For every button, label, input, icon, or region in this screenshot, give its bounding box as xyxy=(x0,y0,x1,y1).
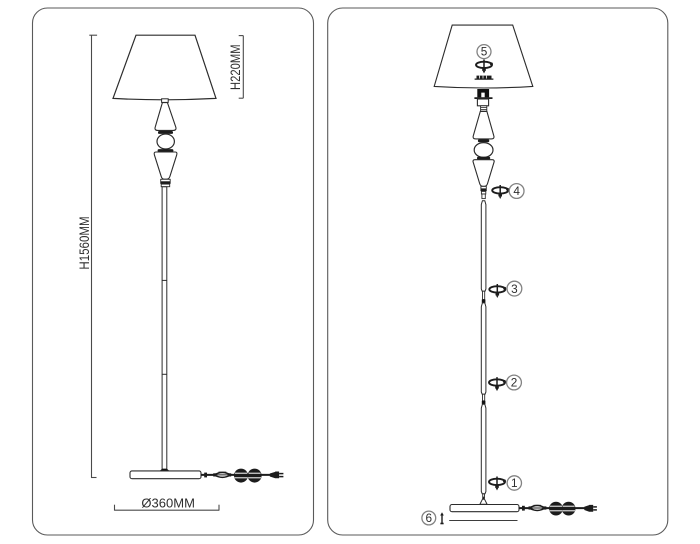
svg-text:3: 3 xyxy=(511,282,518,296)
svg-text:H1560MM: H1560MM xyxy=(77,216,92,269)
svg-text:1: 1 xyxy=(511,476,518,490)
svg-text:6: 6 xyxy=(426,511,433,525)
svg-text:5: 5 xyxy=(481,45,488,59)
svg-text:2: 2 xyxy=(511,376,518,390)
svg-text:Ø360MM: Ø360MM xyxy=(141,495,195,510)
svg-text:H220MM: H220MM xyxy=(228,44,243,90)
svg-text:4: 4 xyxy=(513,184,520,198)
